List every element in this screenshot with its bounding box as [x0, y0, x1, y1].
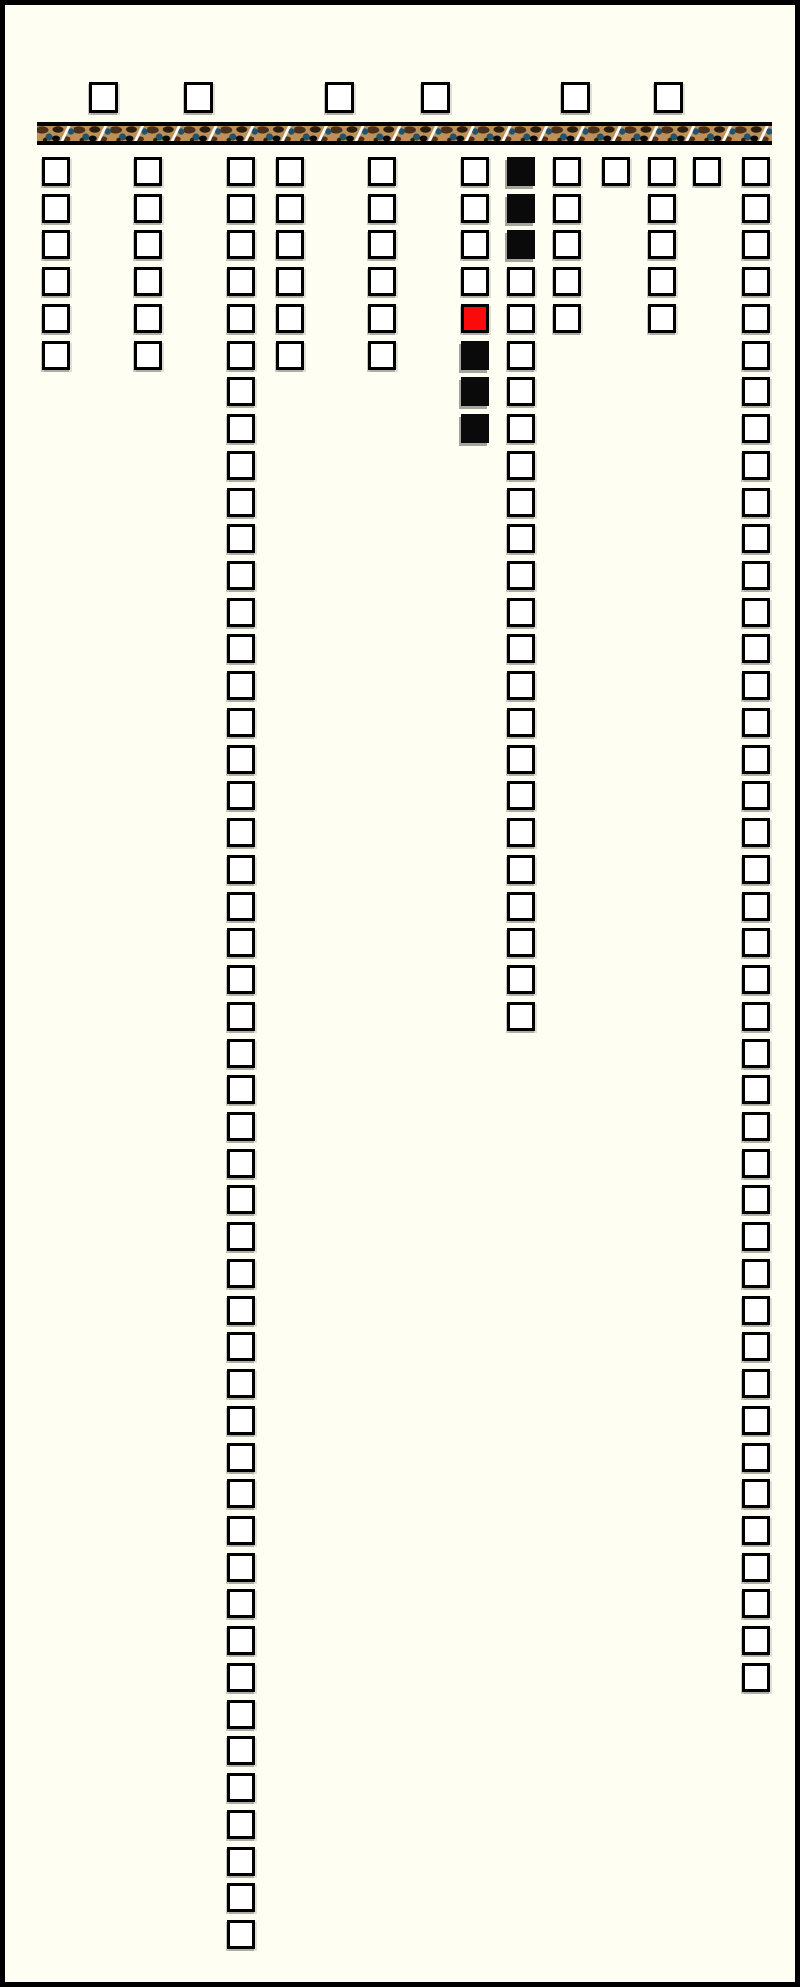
grid-checkbox-col-05-row-4[interactable] — [368, 267, 396, 296]
grid-checkbox-col-03-row-5[interactable] — [227, 304, 255, 333]
grid-checkbox-col-05-row-3[interactable] — [368, 230, 396, 259]
grid-checkbox-col-12-row-25[interactable] — [742, 1039, 770, 1068]
grid-checkbox-col-06-row-8[interactable] — [461, 414, 489, 443]
grid-checkbox-col-12-row-24[interactable] — [742, 1002, 770, 1031]
grid-checkbox-col-03-row-30[interactable] — [227, 1222, 255, 1251]
grid-checkbox-col-02-row-3[interactable] — [134, 230, 162, 259]
grid-checkbox-col-12-row-9[interactable] — [742, 451, 770, 480]
grid-checkbox-col-07-row-23[interactable] — [507, 965, 535, 994]
grid-checkbox-col-10-row-2[interactable] — [648, 194, 676, 223]
grid-checkbox-col-12-row-17[interactable] — [742, 745, 770, 774]
grid-checkbox-col-03-row-48[interactable] — [227, 1883, 255, 1912]
grid-checkbox-col-12-row-19[interactable] — [742, 818, 770, 847]
grid-checkbox-col-03-row-46[interactable] — [227, 1810, 255, 1839]
grid-checkbox-col-03-row-2[interactable] — [227, 194, 255, 223]
grid-checkbox-col-03-row-29[interactable] — [227, 1185, 255, 1214]
header-checkbox-2[interactable] — [184, 82, 213, 113]
grid-checkbox-col-03-row-23[interactable] — [227, 965, 255, 994]
grid-checkbox-col-12-row-30[interactable] — [742, 1222, 770, 1251]
grid-checkbox-col-03-row-8[interactable] — [227, 414, 255, 443]
grid-checkbox-col-12-row-15[interactable] — [742, 671, 770, 700]
grid-checkbox-col-03-row-6[interactable] — [227, 341, 255, 370]
grid-checkbox-col-01-row-3[interactable] — [42, 230, 70, 259]
grid-checkbox-col-02-row-2[interactable] — [134, 194, 162, 223]
grid-checkbox-col-03-row-41[interactable] — [227, 1626, 255, 1655]
grid-checkbox-col-07-row-24[interactable] — [507, 1002, 535, 1031]
grid-checkbox-col-03-row-39[interactable] — [227, 1553, 255, 1582]
grid-checkbox-col-07-row-3[interactable] — [507, 230, 535, 259]
grid-checkbox-col-12-row-27[interactable] — [742, 1112, 770, 1141]
grid-checkbox-col-06-row-2[interactable] — [461, 194, 489, 223]
grid-checkbox-col-07-row-5[interactable] — [507, 304, 535, 333]
grid-checkbox-col-12-row-1[interactable] — [742, 157, 770, 186]
grid-checkbox-col-12-row-42[interactable] — [742, 1663, 770, 1692]
grid-checkbox-col-04-row-5[interactable] — [276, 304, 304, 333]
grid-checkbox-col-03-row-47[interactable] — [227, 1847, 255, 1876]
grid-checkbox-col-06-row-4[interactable] — [461, 267, 489, 296]
grid-checkbox-col-04-row-4[interactable] — [276, 267, 304, 296]
grid-checkbox-col-05-row-6[interactable] — [368, 341, 396, 370]
grid-checkbox-col-11-row-1[interactable] — [693, 157, 721, 186]
grid-checkbox-col-07-row-6[interactable] — [507, 341, 535, 370]
grid-checkbox-col-12-row-37[interactable] — [742, 1479, 770, 1508]
grid-checkbox-col-12-row-22[interactable] — [742, 928, 770, 957]
grid-checkbox-col-03-row-31[interactable] — [227, 1259, 255, 1288]
grid-checkbox-col-05-row-1[interactable] — [368, 157, 396, 186]
grid-checkbox-col-03-row-35[interactable] — [227, 1406, 255, 1435]
grid-checkbox-col-07-row-1[interactable] — [507, 157, 535, 186]
header-checkbox-5[interactable] — [561, 82, 590, 113]
grid-checkbox-col-03-row-11[interactable] — [227, 524, 255, 553]
grid-checkbox-col-12-row-12[interactable] — [742, 561, 770, 590]
grid-checkbox-col-03-row-18[interactable] — [227, 781, 255, 810]
grid-checkbox-col-02-row-5[interactable] — [134, 304, 162, 333]
grid-checkbox-col-01-row-5[interactable] — [42, 304, 70, 333]
grid-checkbox-col-03-row-24[interactable] — [227, 1002, 255, 1031]
grid-checkbox-col-03-row-20[interactable] — [227, 855, 255, 884]
grid-checkbox-col-03-row-26[interactable] — [227, 1075, 255, 1104]
grid-checkbox-col-07-row-7[interactable] — [507, 377, 535, 406]
grid-checkbox-col-07-row-8[interactable] — [507, 414, 535, 443]
grid-checkbox-col-07-row-18[interactable] — [507, 781, 535, 810]
grid-checkbox-col-07-row-22[interactable] — [507, 928, 535, 957]
grid-checkbox-col-03-row-27[interactable] — [227, 1112, 255, 1141]
grid-checkbox-col-03-row-15[interactable] — [227, 671, 255, 700]
grid-checkbox-col-04-row-1[interactable] — [276, 157, 304, 186]
grid-checkbox-col-12-row-39[interactable] — [742, 1553, 770, 1582]
grid-checkbox-col-03-row-12[interactable] — [227, 561, 255, 590]
grid-checkbox-col-03-row-21[interactable] — [227, 892, 255, 921]
grid-checkbox-col-07-row-14[interactable] — [507, 634, 535, 663]
grid-checkbox-col-12-row-13[interactable] — [742, 598, 770, 627]
grid-checkbox-col-03-row-3[interactable] — [227, 230, 255, 259]
grid-checkbox-col-03-row-4[interactable] — [227, 267, 255, 296]
grid-checkbox-col-06-row-1[interactable] — [461, 157, 489, 186]
grid-checkbox-col-12-row-31[interactable] — [742, 1259, 770, 1288]
grid-checkbox-col-06-row-3[interactable] — [461, 230, 489, 259]
grid-checkbox-col-12-row-5[interactable] — [742, 304, 770, 333]
grid-checkbox-col-12-row-28[interactable] — [742, 1149, 770, 1178]
grid-checkbox-col-08-row-3[interactable] — [553, 230, 581, 259]
grid-checkbox-col-07-row-10[interactable] — [507, 488, 535, 517]
grid-checkbox-col-06-row-5[interactable] — [461, 304, 489, 333]
grid-checkbox-col-05-row-5[interactable] — [368, 304, 396, 333]
grid-checkbox-col-07-row-21[interactable] — [507, 892, 535, 921]
grid-checkbox-col-12-row-4[interactable] — [742, 267, 770, 296]
grid-checkbox-col-12-row-40[interactable] — [742, 1589, 770, 1618]
grid-checkbox-col-02-row-4[interactable] — [134, 267, 162, 296]
grid-checkbox-col-03-row-7[interactable] — [227, 377, 255, 406]
grid-checkbox-col-08-row-5[interactable] — [553, 304, 581, 333]
grid-checkbox-col-12-row-16[interactable] — [742, 708, 770, 737]
grid-checkbox-col-12-row-38[interactable] — [742, 1516, 770, 1545]
grid-checkbox-col-03-row-10[interactable] — [227, 488, 255, 517]
grid-checkbox-col-12-row-20[interactable] — [742, 855, 770, 884]
grid-checkbox-col-03-row-34[interactable] — [227, 1369, 255, 1398]
grid-checkbox-col-03-row-16[interactable] — [227, 708, 255, 737]
grid-checkbox-col-04-row-2[interactable] — [276, 194, 304, 223]
grid-checkbox-col-03-row-44[interactable] — [227, 1736, 255, 1765]
grid-checkbox-col-12-row-11[interactable] — [742, 524, 770, 553]
grid-checkbox-col-03-row-33[interactable] — [227, 1332, 255, 1361]
grid-checkbox-col-12-row-35[interactable] — [742, 1406, 770, 1435]
grid-checkbox-col-03-row-42[interactable] — [227, 1663, 255, 1692]
grid-checkbox-col-02-row-1[interactable] — [134, 157, 162, 186]
grid-checkbox-col-08-row-4[interactable] — [553, 267, 581, 296]
grid-checkbox-col-07-row-20[interactable] — [507, 855, 535, 884]
grid-checkbox-col-12-row-8[interactable] — [742, 414, 770, 443]
grid-checkbox-col-03-row-14[interactable] — [227, 634, 255, 663]
grid-checkbox-col-02-row-6[interactable] — [134, 341, 162, 370]
page — [0, 0, 800, 1987]
grid-checkbox-col-12-row-23[interactable] — [742, 965, 770, 994]
grid-checkbox-col-01-row-6[interactable] — [42, 341, 70, 370]
grid-checkbox-col-03-row-49[interactable] — [227, 1920, 255, 1949]
grid-checkbox-col-04-row-6[interactable] — [276, 341, 304, 370]
grid-checkbox-col-12-row-2[interactable] — [742, 194, 770, 223]
grid-checkbox-col-03-row-37[interactable] — [227, 1479, 255, 1508]
grid-checkbox-col-03-row-38[interactable] — [227, 1516, 255, 1545]
grid-checkbox-col-03-row-19[interactable] — [227, 818, 255, 847]
grid-checkbox-col-09-row-1[interactable] — [602, 157, 630, 186]
grid-checkbox-col-03-row-1[interactable] — [227, 157, 255, 186]
grid-checkbox-col-10-row-5[interactable] — [648, 304, 676, 333]
grid-checkbox-col-07-row-15[interactable] — [507, 671, 535, 700]
grid-checkbox-col-03-row-9[interactable] — [227, 451, 255, 480]
grid-checkbox-col-01-row-4[interactable] — [42, 267, 70, 296]
grid-checkbox-col-12-row-21[interactable] — [742, 892, 770, 921]
camo-divider-bar — [37, 122, 772, 145]
grid-checkbox-col-03-row-22[interactable] — [227, 928, 255, 957]
grid-checkbox-col-12-row-6[interactable] — [742, 341, 770, 370]
grid-checkbox-col-05-row-2[interactable] — [368, 194, 396, 223]
grid-checkbox-col-12-row-26[interactable] — [742, 1075, 770, 1104]
grid-checkbox-col-08-row-1[interactable] — [553, 157, 581, 186]
grid-checkbox-col-03-row-32[interactable] — [227, 1296, 255, 1325]
grid-checkbox-col-07-row-11[interactable] — [507, 524, 535, 553]
grid-checkbox-col-01-row-2[interactable] — [42, 194, 70, 223]
grid-checkbox-col-03-row-28[interactable] — [227, 1149, 255, 1178]
grid-checkbox-col-07-row-4[interactable] — [507, 267, 535, 296]
grid-checkbox-col-06-row-7[interactable] — [461, 377, 489, 406]
grid-checkbox-col-12-row-41[interactable] — [742, 1626, 770, 1655]
grid-checkbox-col-04-row-3[interactable] — [276, 230, 304, 259]
grid-checkbox-col-08-row-2[interactable] — [553, 194, 581, 223]
grid-checkbox-col-07-row-13[interactable] — [507, 598, 535, 627]
grid-checkbox-col-07-row-12[interactable] — [507, 561, 535, 590]
grid-checkbox-col-10-row-3[interactable] — [648, 230, 676, 259]
grid-checkbox-col-03-row-40[interactable] — [227, 1589, 255, 1618]
header-checkbox-3[interactable] — [325, 82, 354, 113]
grid-checkbox-col-07-row-9[interactable] — [507, 451, 535, 480]
grid-checkbox-col-12-row-18[interactable] — [742, 781, 770, 810]
grid-checkbox-col-03-row-43[interactable] — [227, 1700, 255, 1729]
grid-checkbox-col-12-row-32[interactable] — [742, 1296, 770, 1325]
grid-checkbox-col-07-row-16[interactable] — [507, 708, 535, 737]
grid-checkbox-col-03-row-36[interactable] — [227, 1443, 255, 1472]
grid-checkbox-col-03-row-45[interactable] — [227, 1773, 255, 1802]
grid-checkbox-col-03-row-25[interactable] — [227, 1039, 255, 1068]
grid-checkbox-col-12-row-10[interactable] — [742, 488, 770, 517]
grid-checkbox-col-01-row-1[interactable] — [42, 157, 70, 186]
header-checkbox-6[interactable] — [654, 82, 683, 113]
grid-checkbox-col-10-row-1[interactable] — [648, 157, 676, 186]
grid-checkbox-col-12-row-33[interactable] — [742, 1332, 770, 1361]
grid-checkbox-col-12-row-3[interactable] — [742, 230, 770, 259]
grid-checkbox-col-03-row-17[interactable] — [227, 745, 255, 774]
grid-checkbox-col-07-row-19[interactable] — [507, 818, 535, 847]
grid-checkbox-col-03-row-13[interactable] — [227, 598, 255, 627]
header-checkbox-4[interactable] — [421, 82, 450, 113]
grid-checkbox-col-12-row-14[interactable] — [742, 634, 770, 663]
grid-checkbox-col-06-row-6[interactable] — [461, 341, 489, 370]
grid-checkbox-col-12-row-34[interactable] — [742, 1369, 770, 1398]
grid-checkbox-col-07-row-2[interactable] — [507, 194, 535, 223]
grid-checkbox-col-12-row-36[interactable] — [742, 1443, 770, 1472]
grid-checkbox-col-07-row-17[interactable] — [507, 745, 535, 774]
grid-checkbox-col-10-row-4[interactable] — [648, 267, 676, 296]
grid-checkbox-col-12-row-29[interactable] — [742, 1185, 770, 1214]
header-checkbox-1[interactable] — [89, 82, 118, 113]
grid-checkbox-col-12-row-7[interactable] — [742, 377, 770, 406]
